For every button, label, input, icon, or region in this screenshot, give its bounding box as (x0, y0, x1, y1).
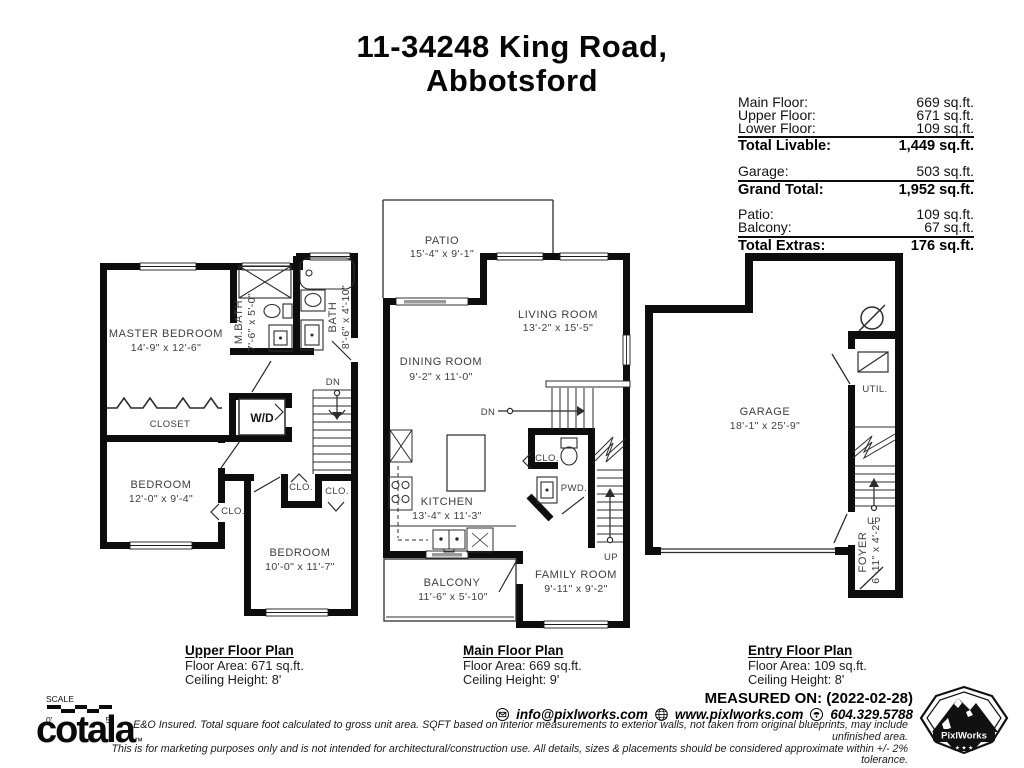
caption-ceiling: Ceiling Height: 9' (463, 673, 582, 687)
upper-floor-caption: Upper Floor Plan Floor Area: 671 sq.ft. … (185, 643, 304, 687)
main-up-arrow (605, 488, 615, 543)
pwd-angled-wall (529, 496, 551, 519)
label-bedroom1-dims: 12'-0" x 9'-4" (129, 493, 193, 505)
closet-door-mark (211, 504, 219, 520)
caption-area: Floor Area: 671 sq.ft. (185, 659, 304, 673)
entry-util-fixture (858, 352, 888, 372)
caption-title: Entry Floor Plan (748, 643, 867, 659)
upper-stairs (313, 390, 351, 474)
label-bedroom1: BEDROOM (130, 479, 191, 491)
main-floor-caption: Main Floor Plan Floor Area: 669 sq.ft. C… (463, 643, 582, 687)
label-up: UP (604, 552, 618, 563)
stove-icon (389, 477, 412, 510)
pixlworks-logo-text: PixlWorks (941, 731, 987, 742)
label-living-room: LIVING ROOM (518, 309, 598, 321)
label-washer-dryer: W/D (250, 411, 274, 425)
label-util: UTIL. (862, 384, 887, 395)
entry-drain-symbol (859, 305, 885, 331)
label-patio: PATIO (425, 235, 459, 247)
label-balcony: BALCONY (424, 577, 481, 589)
toilet-icon (264, 305, 280, 318)
entry-garage-door (661, 549, 835, 553)
label-pwd: PWD. (561, 483, 587, 494)
label-dn: DN (326, 377, 341, 388)
label-garage: GARAGE (740, 406, 791, 418)
caption-area: Floor Area: 669 sq.ft. (463, 659, 582, 673)
disclaimer-line2: This is for marketing purposes only and … (96, 744, 908, 768)
label-clo: CLO. (325, 486, 349, 497)
balcony-door-threshold (432, 553, 462, 557)
floorplan-sheet: 11-34248 King Road, Abbotsford Main Floo… (0, 0, 1024, 768)
label-kitchen-dims: 13'-4" x 11'-3" (412, 510, 482, 522)
label-dining-room-dims: 9'-2" x 11'-0" (409, 371, 473, 383)
main-dn-arrow (498, 406, 585, 416)
label-family-room-dims: 9'-11" x 9'-2" (544, 583, 608, 595)
kitchen-island-icon (447, 435, 485, 491)
label-living-room-dims: 13'-2" x 15'-5" (523, 322, 594, 334)
label-master-bedroom: MASTER BEDROOM (109, 328, 223, 340)
label-foyer-dims: 6'-11" x 4'-2" (870, 520, 882, 584)
caption-ceiling: Ceiling Height: 8' (748, 673, 867, 687)
label-bedroom2-dims: 10'-0" x 11'-7" (265, 561, 335, 573)
scale-label: SCALE (46, 694, 118, 704)
main-balcony-outline (384, 559, 516, 621)
label-closet: CLOSET (150, 419, 190, 430)
label-patio-dims: 15'-4" x 9'-1" (410, 248, 474, 260)
caption-area: Floor Area: 109 sq.ft. (748, 659, 867, 673)
label-dn: DN (481, 407, 496, 418)
closet-door-mark (328, 502, 344, 511)
caption-title: Upper Floor Plan (185, 643, 304, 659)
bathtub-icon (300, 258, 354, 289)
label-balcony-dims: 11'-6" x 5'-10" (418, 591, 488, 603)
entry-floor-caption: Entry Floor Plan Floor Area: 109 sq.ft. … (748, 643, 867, 687)
label-kitchen: KITCHEN (421, 496, 473, 508)
main-dn-stairs (546, 381, 630, 430)
label-bedroom2: BEDROOM (269, 547, 330, 559)
label-clo: CLO. (289, 482, 313, 493)
label-family-room: FAMILY ROOM (535, 569, 617, 581)
upper-dn-arrow (329, 390, 345, 420)
label-clo: CLO. (535, 453, 559, 464)
label-bath-dims: 8'-6" x 4'-10" (340, 285, 352, 349)
label-dining-room: DINING ROOM (400, 356, 482, 368)
closet-door-mark (291, 474, 307, 482)
caption-ceiling: Ceiling Height: 8' (185, 673, 304, 687)
patio-slider-door-icon (404, 300, 446, 304)
closet-opening-line (107, 398, 222, 408)
measured-on: MEASURED ON: (2022-02-28) (705, 690, 913, 707)
pixlworks-logo: PixlWorks ★ ★ ★ (918, 684, 1010, 756)
label-foyer: FOYER (857, 532, 869, 573)
label-bath: BATH (327, 302, 339, 333)
label-garage-dims: 18'-1" x 25'-9" (730, 420, 801, 432)
caption-title: Main Floor Plan (463, 643, 582, 659)
logo-stars: ★ ★ ★ (955, 746, 973, 752)
disclaimer-line1: E&O Insured. Total square foot calculate… (96, 720, 908, 744)
label-mbath: M.BATH (233, 300, 245, 344)
disclaimer-text: E&O Insured. Total square foot calculate… (96, 720, 908, 767)
label-mbath-dims: 7'-6" x 5'-0" (246, 293, 258, 351)
label-master-bedroom-dims: 14'-9" x 12'-6" (131, 342, 202, 354)
entry-floor-labels: GARAGE 18'-1" x 25'-9" UTIL. UP FOYER 6'… (730, 384, 888, 584)
toilet-icon (561, 447, 577, 465)
label-clo: CLO. (221, 506, 245, 517)
main-kitchen-fixtures (389, 430, 516, 552)
